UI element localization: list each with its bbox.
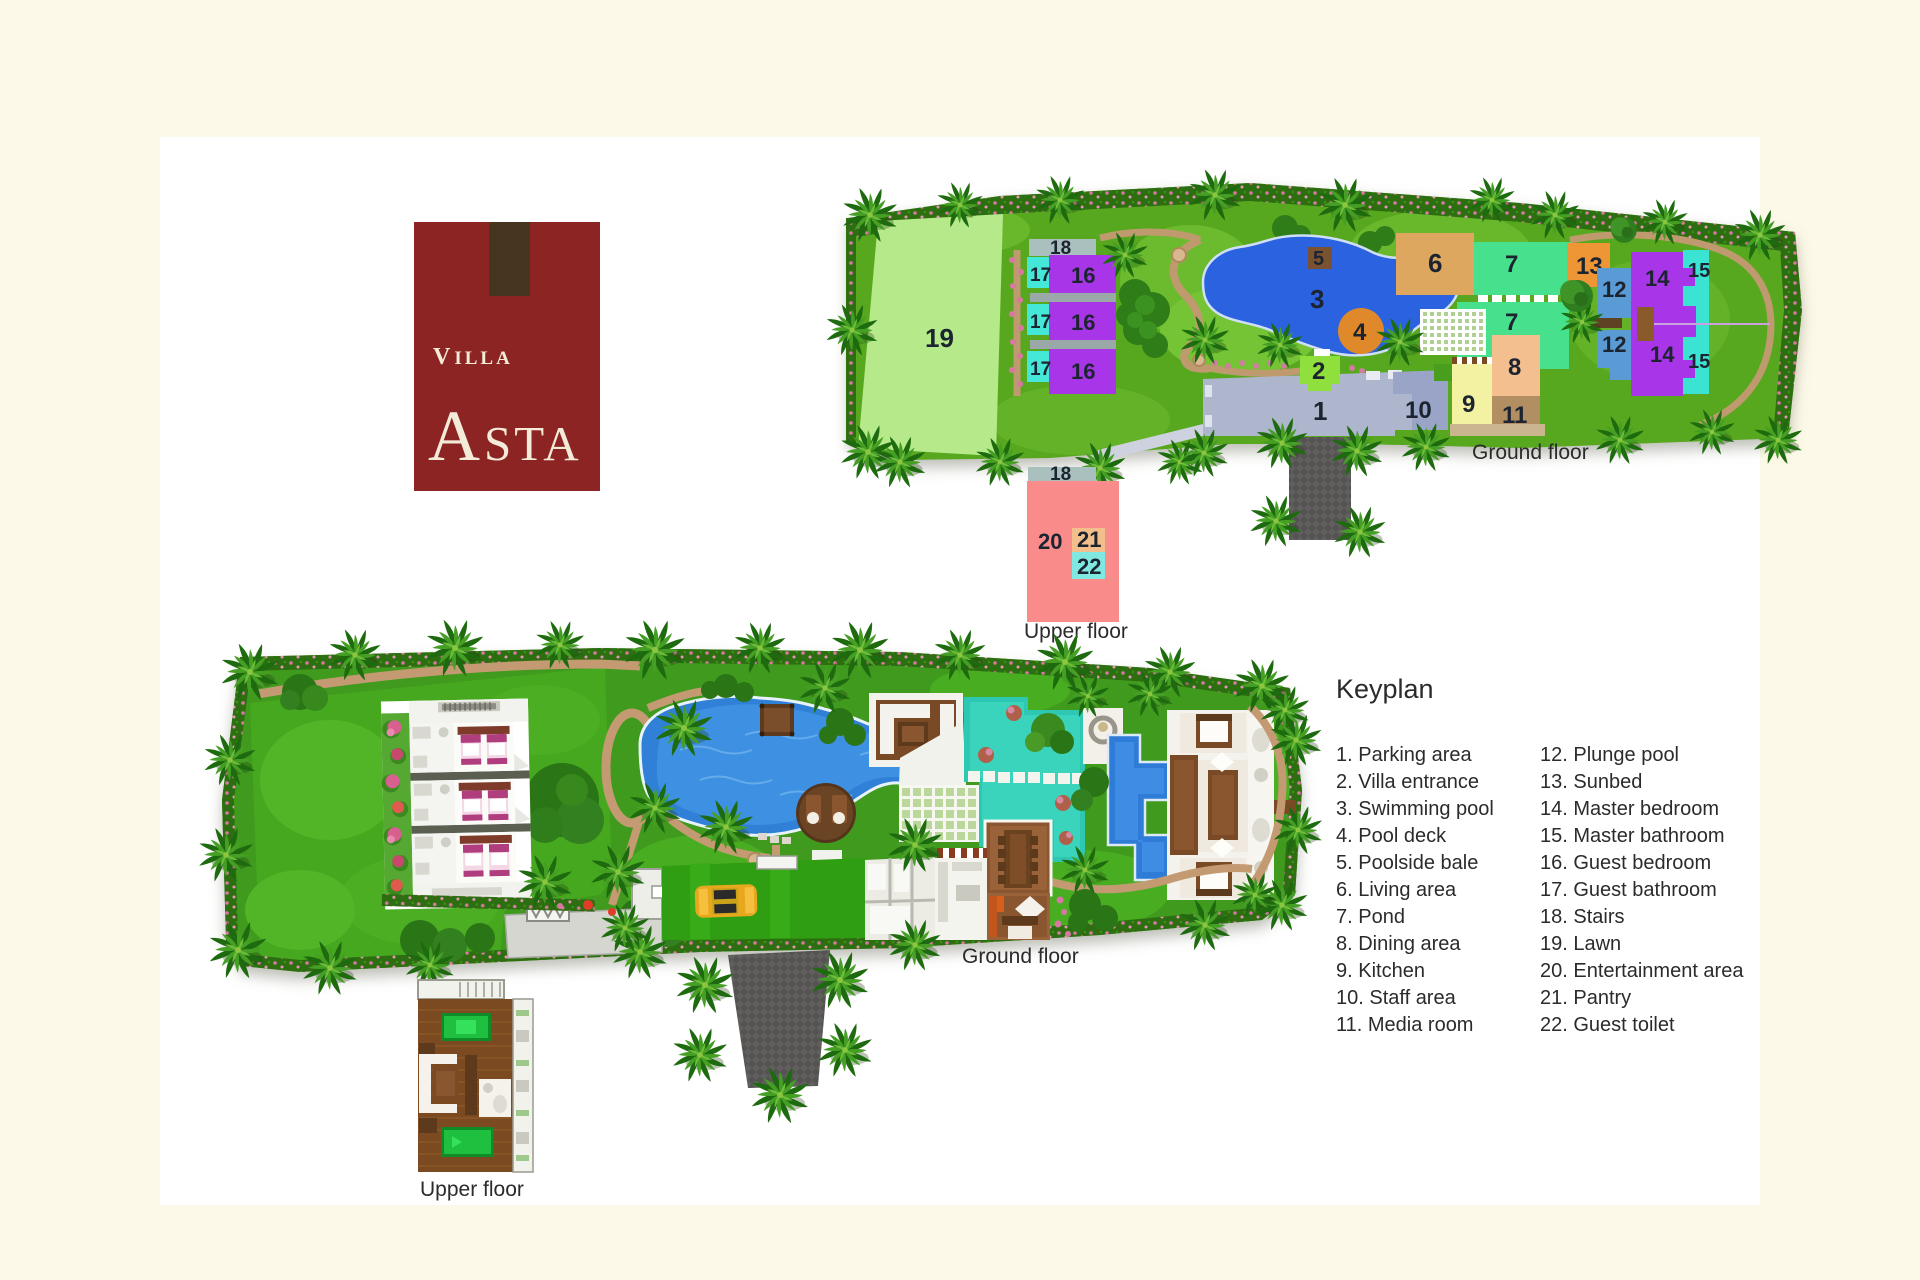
svg-text:15: 15 bbox=[1688, 351, 1710, 373]
svg-text:19. Lawn: 19. Lawn bbox=[1540, 933, 1621, 955]
svg-text:21: 21 bbox=[1077, 527, 1101, 552]
svg-text:16: 16 bbox=[1071, 263, 1095, 288]
svg-text:14: 14 bbox=[1650, 342, 1675, 367]
svg-text:5: 5 bbox=[1313, 248, 1324, 270]
svg-text:17: 17 bbox=[1030, 359, 1051, 380]
svg-text:14. Master bedroom: 14. Master bedroom bbox=[1540, 798, 1719, 820]
svg-text:3: 3 bbox=[1310, 284, 1324, 314]
svg-text:19: 19 bbox=[925, 323, 954, 353]
svg-text:5. Poolside bale: 5. Poolside bale bbox=[1336, 852, 1478, 874]
svg-text:Ground floor: Ground floor bbox=[962, 945, 1079, 968]
svg-text:16: 16 bbox=[1071, 359, 1095, 384]
svg-text:8. Dining area: 8. Dining area bbox=[1336, 933, 1461, 955]
svg-text:6: 6 bbox=[1428, 248, 1442, 278]
svg-text:21. Pantry: 21. Pantry bbox=[1540, 987, 1631, 1009]
svg-text:16: 16 bbox=[1071, 310, 1095, 335]
svg-text:Upper floor: Upper floor bbox=[420, 1178, 524, 1201]
svg-text:20. Entertainment area: 20. Entertainment area bbox=[1540, 960, 1744, 982]
svg-text:3. Swimming pool: 3. Swimming pool bbox=[1336, 798, 1494, 820]
svg-text:20: 20 bbox=[1038, 529, 1062, 554]
svg-text:12: 12 bbox=[1602, 277, 1626, 302]
svg-text:7: 7 bbox=[1505, 251, 1518, 278]
svg-text:11. Media room: 11. Media room bbox=[1336, 1014, 1473, 1036]
svg-text:6. Living area: 6. Living area bbox=[1336, 879, 1457, 901]
svg-text:9: 9 bbox=[1462, 391, 1475, 418]
svg-text:1: 1 bbox=[1313, 396, 1327, 426]
svg-text:10. Staff area: 10. Staff area bbox=[1336, 987, 1457, 1009]
svg-text:17. Guest bathroom: 17. Guest bathroom bbox=[1540, 879, 1717, 901]
svg-text:12: 12 bbox=[1602, 332, 1626, 357]
svg-text:18. Stairs: 18. Stairs bbox=[1540, 906, 1624, 928]
svg-text:15. Master bathroom: 15. Master bathroom bbox=[1540, 825, 1725, 847]
svg-text:13. Sunbed: 13. Sunbed bbox=[1540, 771, 1642, 793]
svg-text:10: 10 bbox=[1405, 397, 1432, 424]
svg-text:22: 22 bbox=[1077, 554, 1101, 579]
svg-text:1. Parking area: 1. Parking area bbox=[1336, 744, 1473, 766]
svg-text:4: 4 bbox=[1353, 319, 1367, 346]
svg-text:16. Guest bedroom: 16. Guest bedroom bbox=[1540, 852, 1711, 874]
svg-text:4. Pool deck: 4. Pool deck bbox=[1336, 825, 1447, 847]
svg-text:7. Pond: 7. Pond bbox=[1336, 906, 1405, 928]
svg-text:Ground floor: Ground floor bbox=[1472, 441, 1589, 464]
svg-text:9. Kitchen: 9. Kitchen bbox=[1336, 960, 1425, 982]
svg-text:8: 8 bbox=[1508, 354, 1521, 381]
svg-text:17: 17 bbox=[1030, 265, 1051, 286]
svg-text:2. Villa entrance: 2. Villa entrance bbox=[1336, 771, 1479, 793]
svg-text:VILLA: VILLA bbox=[433, 344, 513, 370]
svg-text:14: 14 bbox=[1645, 266, 1670, 291]
svg-text:12. Plunge pool: 12. Plunge pool bbox=[1540, 744, 1679, 766]
svg-text:Keyplan: Keyplan bbox=[1336, 674, 1434, 704]
svg-text:2: 2 bbox=[1312, 358, 1325, 385]
svg-text:22. Guest toilet: 22. Guest toilet bbox=[1540, 1014, 1675, 1036]
svg-text:7: 7 bbox=[1505, 309, 1518, 336]
svg-text:17: 17 bbox=[1030, 312, 1051, 333]
svg-text:15: 15 bbox=[1688, 260, 1710, 282]
